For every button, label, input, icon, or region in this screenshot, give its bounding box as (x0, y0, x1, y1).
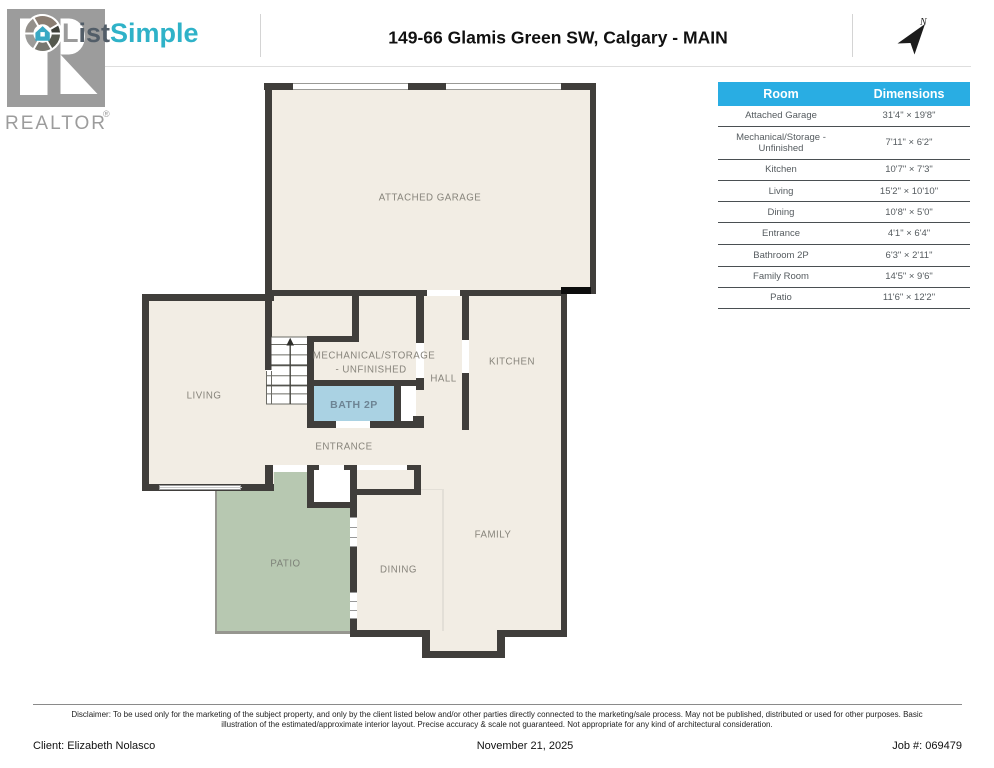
svg-text:REALTOR: REALTOR (5, 113, 107, 134)
svg-text:N: N (919, 17, 928, 28)
svg-text:®: ® (103, 109, 110, 119)
svg-text:ListSimple: ListSimple (62, 18, 199, 48)
